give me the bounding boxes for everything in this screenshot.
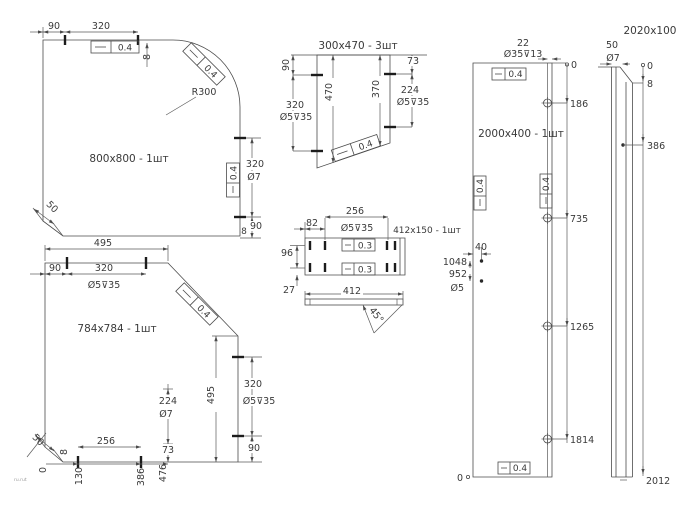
ordinate-label: 0 xyxy=(647,61,653,72)
tolerance-frame: 0.4 xyxy=(227,163,240,197)
part-title: 784x784 - 1шт xyxy=(77,323,156,335)
dim-label: 96 xyxy=(281,248,293,259)
straightness-icon xyxy=(183,290,191,298)
panel-300x470: 90 320 Ø5⊽35 470 370 73 224 Ø5⊽35 0.4 xyxy=(278,40,432,168)
tolerance-value: 0.3 xyxy=(358,242,372,252)
angle-label: 45° xyxy=(366,305,385,325)
dim-label: 90 xyxy=(48,21,60,32)
straightness-icon xyxy=(190,50,198,58)
dim-label: 412 xyxy=(343,286,361,297)
radius-label: R300 xyxy=(192,87,217,98)
tolerance-frame: 0.3 xyxy=(342,239,375,252)
dim-label: 27 xyxy=(283,285,295,296)
ordinate-label: 2012 xyxy=(646,476,670,487)
hole-dot-icon xyxy=(480,279,483,282)
dim-label: 73 xyxy=(407,56,419,67)
ordinate-label: 0 xyxy=(457,473,463,484)
part-title: 2020x100 xyxy=(624,25,677,37)
panel-800x800: 90 320 0.4 8 0.4 R300 320 xyxy=(30,21,266,238)
dim-label: 256 xyxy=(346,206,364,217)
hole-note: Ø5⊽35 xyxy=(341,223,374,234)
dim-label: 495 xyxy=(94,238,112,249)
tolerance-value: 0.4 xyxy=(542,177,552,192)
tolerance-value: 0.4 xyxy=(230,166,240,181)
cad-drawing-sheet: 90 320 0.4 8 0.4 R300 320 xyxy=(0,0,695,506)
part-title: 412x150 - 1шт xyxy=(393,226,461,236)
tolerance-frame: 0.4 xyxy=(492,68,526,80)
dim-label: 8 xyxy=(142,54,153,60)
strip-2020x100: 2020x100 50 Ø7 0 8 386 2012 xyxy=(598,25,676,487)
ordinate-label: 952 xyxy=(449,269,467,280)
dim-label: 224 xyxy=(159,396,177,407)
ordinate-label: 1814 xyxy=(570,435,594,446)
ordinate-label: 1265 xyxy=(570,322,594,333)
hole-position-icon xyxy=(542,320,568,332)
hole-dot-icon xyxy=(480,259,483,262)
hole-position-icon xyxy=(542,212,568,224)
hole-note: Ø7 xyxy=(606,53,620,64)
dim-label: 470 xyxy=(324,83,335,101)
ordinate-label: 0 xyxy=(38,467,49,473)
ordinate-label: 0 xyxy=(571,60,577,71)
dim-label: 320 xyxy=(286,100,304,111)
tolerance-frame: 0.4 xyxy=(91,41,139,54)
tolerance-value: 0.4 xyxy=(201,64,218,81)
tolerance-frame: 0.4 xyxy=(540,174,552,208)
part-outline xyxy=(473,63,552,477)
dim-label: 8 xyxy=(241,227,247,237)
dim-label: 40 xyxy=(475,242,487,253)
ordinate-label: 130 xyxy=(74,467,85,485)
dim-label: 495 xyxy=(206,386,217,404)
chamfer-label: 50 xyxy=(44,199,60,215)
hole-position-icon xyxy=(542,97,568,109)
part-title: 2000x400 - 1шт xyxy=(478,128,564,140)
tolerance-value: 0.4 xyxy=(358,139,375,153)
tolerance-frame: 0.3 xyxy=(342,263,375,276)
dim-label: 82 xyxy=(306,218,318,229)
tolerance-value: 0.4 xyxy=(513,464,528,474)
part-outline xyxy=(45,263,238,462)
dim-label: 90 xyxy=(248,443,260,454)
dim-label: 22 xyxy=(517,38,529,49)
panel-784x784: 495 90 320 Ø5⊽35 0.4 495 320 Ø5⊽35 xyxy=(14,238,278,486)
panel-412x150: 0.3 0.3 256 82 Ø5⊽35 96 27 412 xyxy=(281,206,461,333)
tolerance-frame: 0.4 xyxy=(498,462,530,474)
hole-note: Ø5⊽35 xyxy=(397,97,430,108)
panel-2000x400: 22 Ø35⊽13 0 0.4 xyxy=(443,38,594,484)
dim-label: 90 xyxy=(281,59,292,71)
dim-label: 90 xyxy=(49,263,61,274)
tolerance-value: 0.3 xyxy=(358,266,372,276)
ordinate-label: 8 xyxy=(647,79,653,90)
hole-note: Ø7 xyxy=(247,172,261,183)
hole-position-icon xyxy=(542,433,568,445)
part-title: 800x800 - 1шт xyxy=(89,153,168,165)
hole-note: Ø35⊽13 xyxy=(504,49,543,60)
stamp-text: ru.rut xyxy=(14,477,27,483)
tolerance-value: 0.4 xyxy=(118,44,133,54)
ordinate-label: 476 xyxy=(158,464,169,482)
dim-label: 90 xyxy=(250,221,262,232)
dim-label: 320 xyxy=(92,21,110,32)
ordinate-label: 186 xyxy=(570,99,588,110)
straightness-icon xyxy=(337,151,347,155)
tolerance-value: 0.4 xyxy=(508,70,523,80)
ordinate-label: 1048 xyxy=(443,257,467,268)
dim-label: 8 xyxy=(59,449,70,455)
tolerance-frame: 0.4 xyxy=(175,283,218,326)
hole-note: Ø5⊽35 xyxy=(280,112,313,123)
hole-note: Ø5⊽35 xyxy=(88,280,121,291)
tolerance-frame: 0.4 xyxy=(474,176,486,210)
dim-label: 320 xyxy=(95,263,113,274)
drawing-canvas: 90 320 0.4 8 0.4 R300 320 xyxy=(0,0,695,506)
hole-note: Ø5⊽35 xyxy=(243,396,276,407)
part-outline xyxy=(305,238,405,275)
ordinate-label: 386 xyxy=(136,468,147,486)
hole-note: Ø5 xyxy=(450,283,464,294)
ordinate-label: 735 xyxy=(570,214,588,225)
tolerance-value: 0.4 xyxy=(476,179,486,194)
part-outline xyxy=(317,55,390,168)
ordinate-origin-icon xyxy=(466,475,469,478)
hole-note: Ø7 xyxy=(159,409,173,420)
tolerance-frame: 0.4 xyxy=(182,43,225,86)
part-title: 300x470 - 3шт xyxy=(318,40,397,52)
dim-label: 370 xyxy=(371,80,382,98)
dim-label: 73 xyxy=(162,445,174,456)
dim-label: 50 xyxy=(606,40,618,51)
dim-label: 320 xyxy=(246,159,264,170)
dim-label: 256 xyxy=(97,436,115,447)
chamfer-label: 50 xyxy=(30,432,46,448)
ordinate-label: 386 xyxy=(647,141,665,152)
dim-label: 320 xyxy=(244,379,262,390)
tolerance-frame: 0.4 xyxy=(331,135,380,162)
dim-label: 224 xyxy=(401,85,419,96)
